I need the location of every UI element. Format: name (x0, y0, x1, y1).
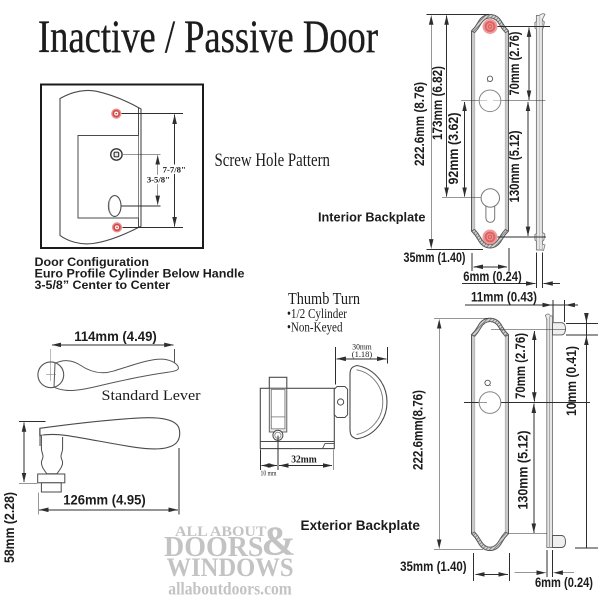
svg-text:3-5/8": 3-5/8" (147, 175, 170, 185)
svg-text:allaboutdoors.com: allaboutdoors.com (168, 579, 292, 599)
svg-text:Interior Backplate: Interior Backplate (318, 210, 426, 225)
svg-text:222.6mm(8.76): 222.6mm(8.76) (410, 390, 425, 470)
svg-text:10mm (0.41): 10mm (0.41) (564, 346, 579, 416)
svg-text:Inactive / Passive Door: Inactive / Passive Door (38, 12, 378, 63)
svg-text:Thumb Turn: Thumb Turn (288, 289, 360, 308)
svg-text:•Non-Keyed: •Non-Keyed (287, 320, 343, 335)
svg-text:6mm (0.24): 6mm (0.24) (535, 575, 593, 590)
svg-text:6mm (0.24): 6mm (0.24) (463, 269, 522, 284)
svg-text:70mm (2.76): 70mm (2.76) (513, 333, 528, 399)
svg-text:114mm (4.49): 114mm (4.49) (74, 329, 157, 344)
svg-text:222.6mm (8.76): 222.6mm (8.76) (412, 82, 427, 166)
svg-text:(1.18): (1.18) (352, 349, 373, 359)
svg-text:11mm (0.43): 11mm (0.43) (471, 290, 537, 305)
svg-text:70mm (2.76): 70mm (2.76) (507, 32, 522, 96)
svg-text:173mm (6.82): 173mm (6.82) (430, 66, 445, 140)
svg-text:130mm (5.12): 130mm (5.12) (515, 431, 530, 510)
svg-text:35mm (1.40): 35mm (1.40) (404, 250, 466, 265)
svg-text:58mm (2.28): 58mm (2.28) (2, 492, 17, 563)
svg-text:Screw Hole Pattern: Screw Hole Pattern (215, 151, 331, 171)
svg-text:Standard Lever: Standard Lever (102, 387, 201, 404)
svg-text:10 mm: 10 mm (261, 468, 277, 477)
svg-text:7-7/8": 7-7/8" (163, 164, 186, 174)
svg-text:3-5/8” Center to Center: 3-5/8” Center to Center (35, 278, 171, 292)
svg-text:32mm: 32mm (291, 455, 317, 466)
svg-text:35mm (1.40): 35mm (1.40) (400, 559, 467, 574)
svg-text:130mm (5.12): 130mm (5.12) (507, 131, 522, 203)
svg-text:Exterior Backplate: Exterior Backplate (301, 518, 421, 533)
svg-text:92mm (3.62): 92mm (3.62) (446, 113, 461, 185)
svg-text:126mm (4.95): 126mm (4.95) (63, 493, 146, 508)
